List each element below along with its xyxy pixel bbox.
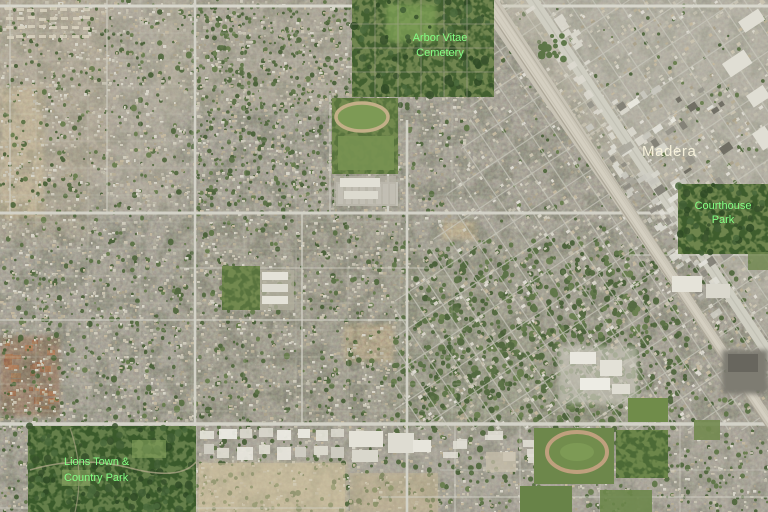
svg-text:Madera: Madera <box>642 143 697 160</box>
svg-text:Park: Park <box>712 214 735 226</box>
svg-text:Country Park: Country Park <box>64 472 129 484</box>
svg-text:Arbor Vitae: Arbor Vitae <box>413 32 468 44</box>
svg-text:Cemetery: Cemetery <box>416 47 464 59</box>
svg-text:Courthouse: Courthouse <box>695 200 752 212</box>
svg-text:Lions Town &: Lions Town & <box>64 456 130 468</box>
